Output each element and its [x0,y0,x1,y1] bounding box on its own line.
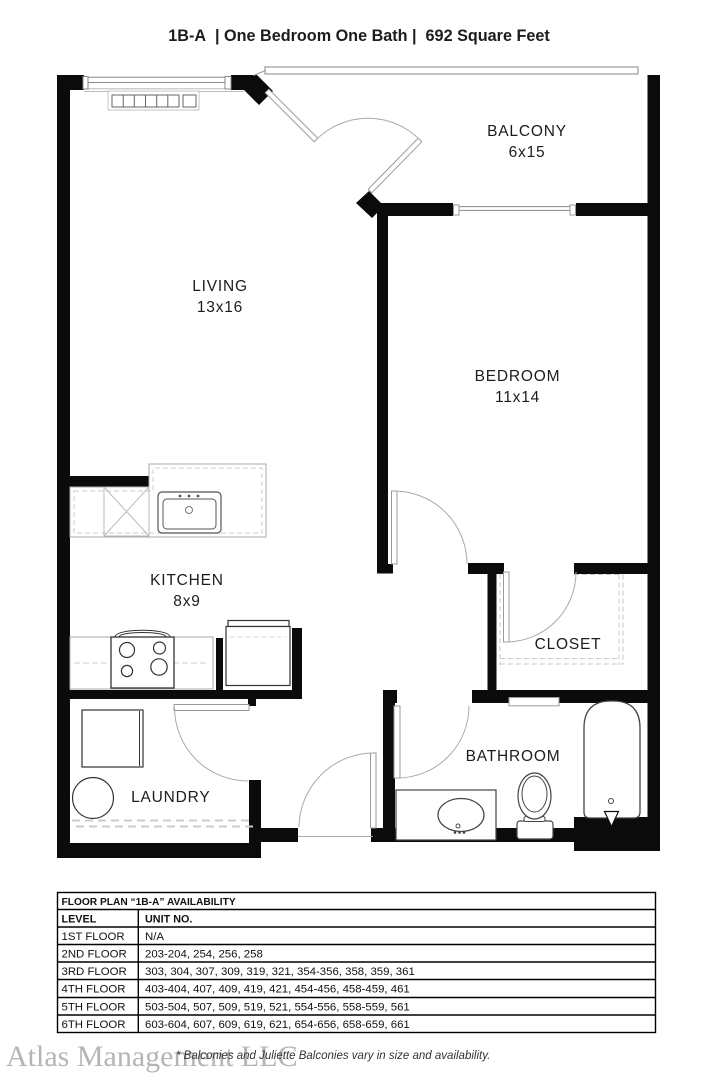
svg-text:5TH FLOOR: 5TH FLOOR [62,1002,126,1014]
svg-text:BATHROOM: BATHROOM [466,748,561,765]
svg-text:FLOOR PLAN “1B-A” AVAILABILITY: FLOOR PLAN “1B-A” AVAILABILITY [62,897,236,908]
svg-text:LAUNDRY: LAUNDRY [131,789,210,806]
svg-text:BALCONY: BALCONY [487,123,567,140]
svg-text:2ND FLOOR: 2ND FLOOR [62,949,127,961]
svg-text:3RD FLOOR: 3RD FLOOR [62,966,127,978]
svg-text:UNIT NO.: UNIT NO. [145,914,192,926]
svg-text:BEDROOM: BEDROOM [475,368,561,385]
svg-text:4TH FLOOR: 4TH FLOOR [62,984,126,996]
svg-text:11x14: 11x14 [495,389,540,406]
svg-text:N/A: N/A [145,931,164,943]
svg-text:6TH FLOOR: 6TH FLOOR [62,1019,126,1031]
svg-text:13x16: 13x16 [197,299,243,316]
svg-text:KITCHEN: KITCHEN [150,572,224,589]
svg-text:303, 304, 307, 309, 319, 321,: 303, 304, 307, 309, 319, 321, 354-356, 3… [145,966,415,978]
svg-text:603-604, 607, 609, 619, 621, 6: 603-604, 607, 609, 619, 621, 654-656, 65… [145,1019,410,1031]
svg-text:LEVEL: LEVEL [62,914,97,926]
svg-text:203-204, 254, 256, 258: 203-204, 254, 256, 258 [145,949,263,961]
svg-text:8x9: 8x9 [173,593,200,610]
svg-text:LIVING: LIVING [192,278,248,295]
svg-text:503-504, 507, 509, 519, 521, 5: 503-504, 507, 509, 519, 521, 554-556, 55… [145,1002,410,1014]
svg-text:403-404, 407, 409, 419, 421, 4: 403-404, 407, 409, 419, 421, 454-456, 45… [145,984,410,996]
svg-text:* Balconies and Juliette Balco: * Balconies and Juliette Balconies vary … [176,1050,490,1062]
svg-text:CLOSET: CLOSET [535,636,602,653]
svg-text:1B-A | One Bedroom One Bath |: 1B-A | One Bedroom One Bath | 692 Square… [168,27,550,45]
svg-text:1ST FLOOR: 1ST FLOOR [62,931,125,943]
svg-text:6x15: 6x15 [509,144,546,161]
